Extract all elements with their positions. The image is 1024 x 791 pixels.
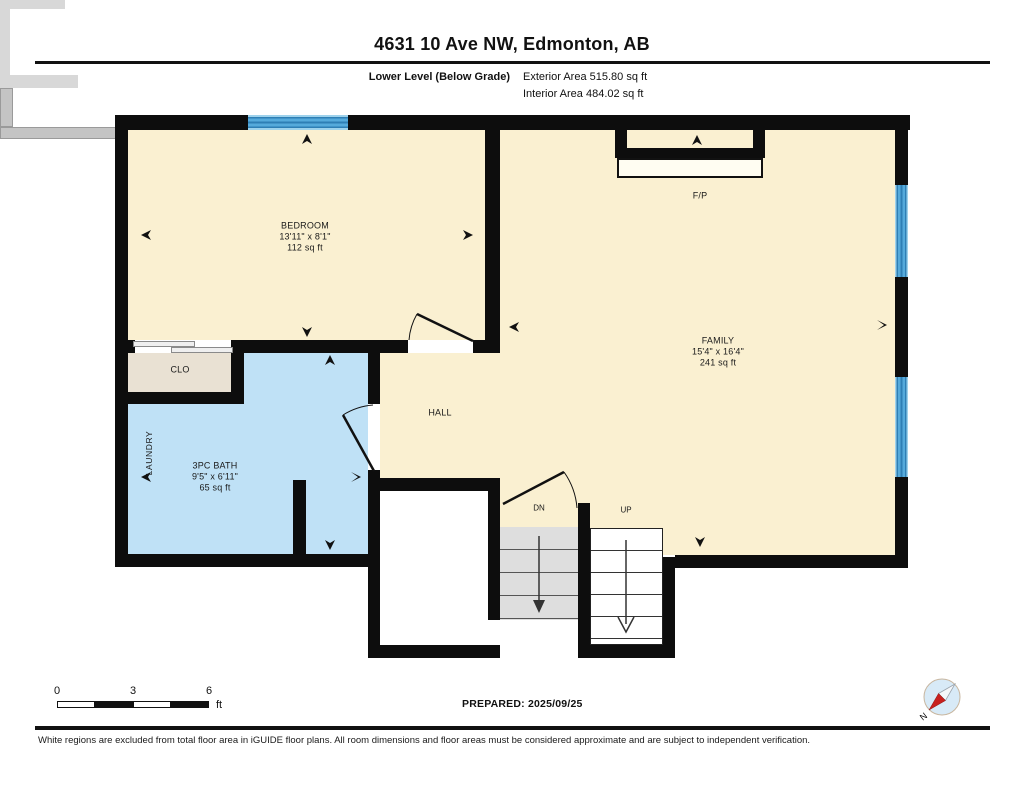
stairs-down-label: DN [533,504,545,513]
wall-segment [368,478,500,491]
room-name: FAMILY [692,336,744,347]
compass: N [917,675,965,723]
room-dims: 9'5" x 6'11" [192,472,238,483]
wall-segment [115,340,135,353]
window [248,115,348,130]
compass-north-letter: N [918,711,929,723]
family-label: FAMILY 15'4" x 16'4" 241 sq ft [692,336,744,369]
wall-segment [485,130,500,353]
bath-label: 3PC BATH 9'5" x 6'11" 65 sq ft [192,461,238,494]
scale-tick-3: 3 [130,685,136,697]
window [895,185,908,277]
wall-segment [233,340,408,353]
wall-segment [115,115,248,130]
bathroom-room-upper [244,353,368,404]
fireplace-wall-stub [753,130,765,149]
stairs-up-label: UP [620,506,631,515]
wall-segment [368,470,380,658]
fireplace-wall-stub [615,130,627,149]
bathroom-room [128,404,368,554]
exterior-area-label: Exterior Area 515.80 sq ft [523,71,647,83]
floor-plan-page: 4631 10 Ave NW, Edmonton, AB Lower Level… [0,0,1024,791]
room-dims: 13'11" x 8'1" [279,232,330,243]
page-title: 4631 10 Ave NW, Edmonton, AB [0,34,1024,55]
wall-segment [368,353,380,404]
room-dims: 15'4" x 16'4" [692,347,744,358]
stairs-up [590,528,663,645]
sliding-door-panel [171,347,233,353]
door-threshold [0,75,78,88]
bedroom-label: BEDROOM 13'11" x 8'1" 112 sq ft [279,221,330,254]
window [895,377,908,477]
wall-segment [115,392,244,404]
wall-segment [895,277,908,377]
wall-segment [115,554,380,567]
header-divider [35,61,990,64]
wall-segment [368,645,500,658]
scale-bar-segment [133,701,171,708]
footer-divider [35,726,990,730]
floor-level-label: Lower Level (Below Grade) [369,71,510,83]
scale-bar-segment [95,701,133,708]
prepared-date: PREPARED: 2025/09/25 [462,698,583,710]
wall-segment [675,555,908,568]
wall-segment [578,645,675,658]
scale-unit-label: ft [216,699,222,711]
hall-label: HALL [428,408,451,419]
stair-landing [500,513,578,527]
stairs-down [500,527,578,620]
room-area: 65 sq ft [192,483,238,494]
scale-tick-6: 6 [206,685,212,697]
scale-bar-segment [57,701,95,708]
room-area: 241 sq ft [692,358,744,369]
scale-tick-0: 0 [54,685,60,697]
disclaimer-text: White regions are excluded from total fl… [38,735,810,746]
wall-segment [348,115,910,130]
fireplace-label: F/P [693,191,708,202]
interior-area-label: Interior Area 484.02 sq ft [523,88,643,100]
room-name: BEDROOM [279,221,330,232]
closet-label: CLO [170,365,189,376]
laundry-label: LAUNDRY [144,431,154,476]
wall-segment [293,480,306,554]
wall-segment [488,478,500,620]
wall-segment [895,130,908,185]
door-threshold [0,0,65,9]
scale-bar-segment [171,701,209,708]
fireplace-alcove [627,130,753,148]
fireplace-wall-bar [615,148,765,158]
wall-segment [578,503,590,647]
ledge [0,88,13,127]
room-area: 112 sq ft [279,243,330,254]
wall-segment [663,557,675,647]
fireplace-hearth [617,158,763,178]
room-name: 3PC BATH [192,461,238,472]
excluded-region [380,491,488,645]
